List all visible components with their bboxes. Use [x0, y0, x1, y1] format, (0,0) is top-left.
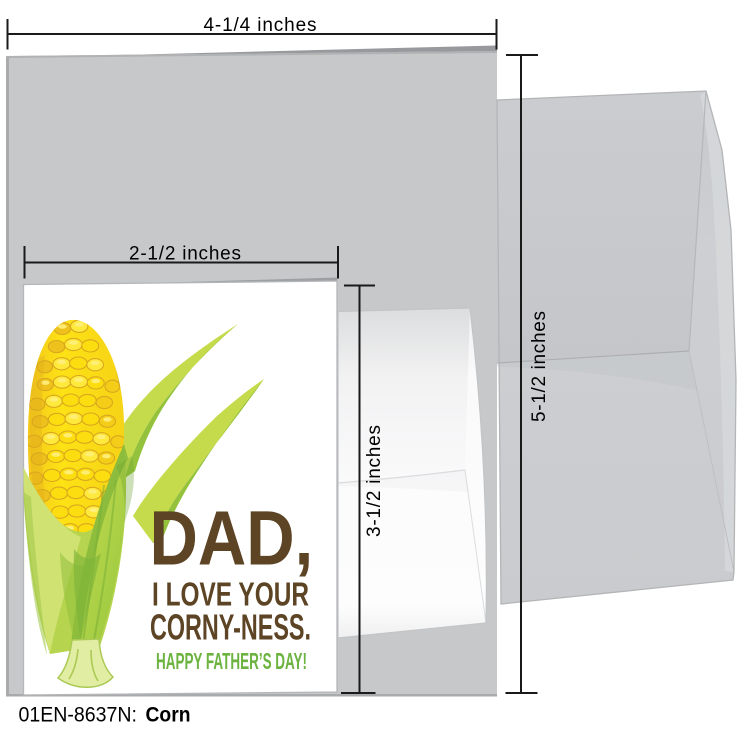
svg-text:01EN-8637N:: 01EN-8637N:	[19, 704, 138, 727]
svg-text:HAPPY FATHER’S DAY!: HAPPY FATHER’S DAY!	[156, 648, 307, 674]
svg-text:2-1/2 inches: 2-1/2 inches	[129, 244, 241, 265]
svg-text:3-1/2 inches: 3-1/2 inches	[364, 425, 385, 537]
svg-text:DAD,: DAD,	[150, 496, 314, 581]
svg-text:CORNY-NESS.: CORNY-NESS.	[150, 607, 311, 648]
svg-text:5-1/2 inches: 5-1/2 inches	[529, 311, 550, 422]
svg-text:Corn: Corn	[146, 704, 191, 727]
svg-text:4-1/4 inches: 4-1/4 inches	[204, 15, 317, 36]
